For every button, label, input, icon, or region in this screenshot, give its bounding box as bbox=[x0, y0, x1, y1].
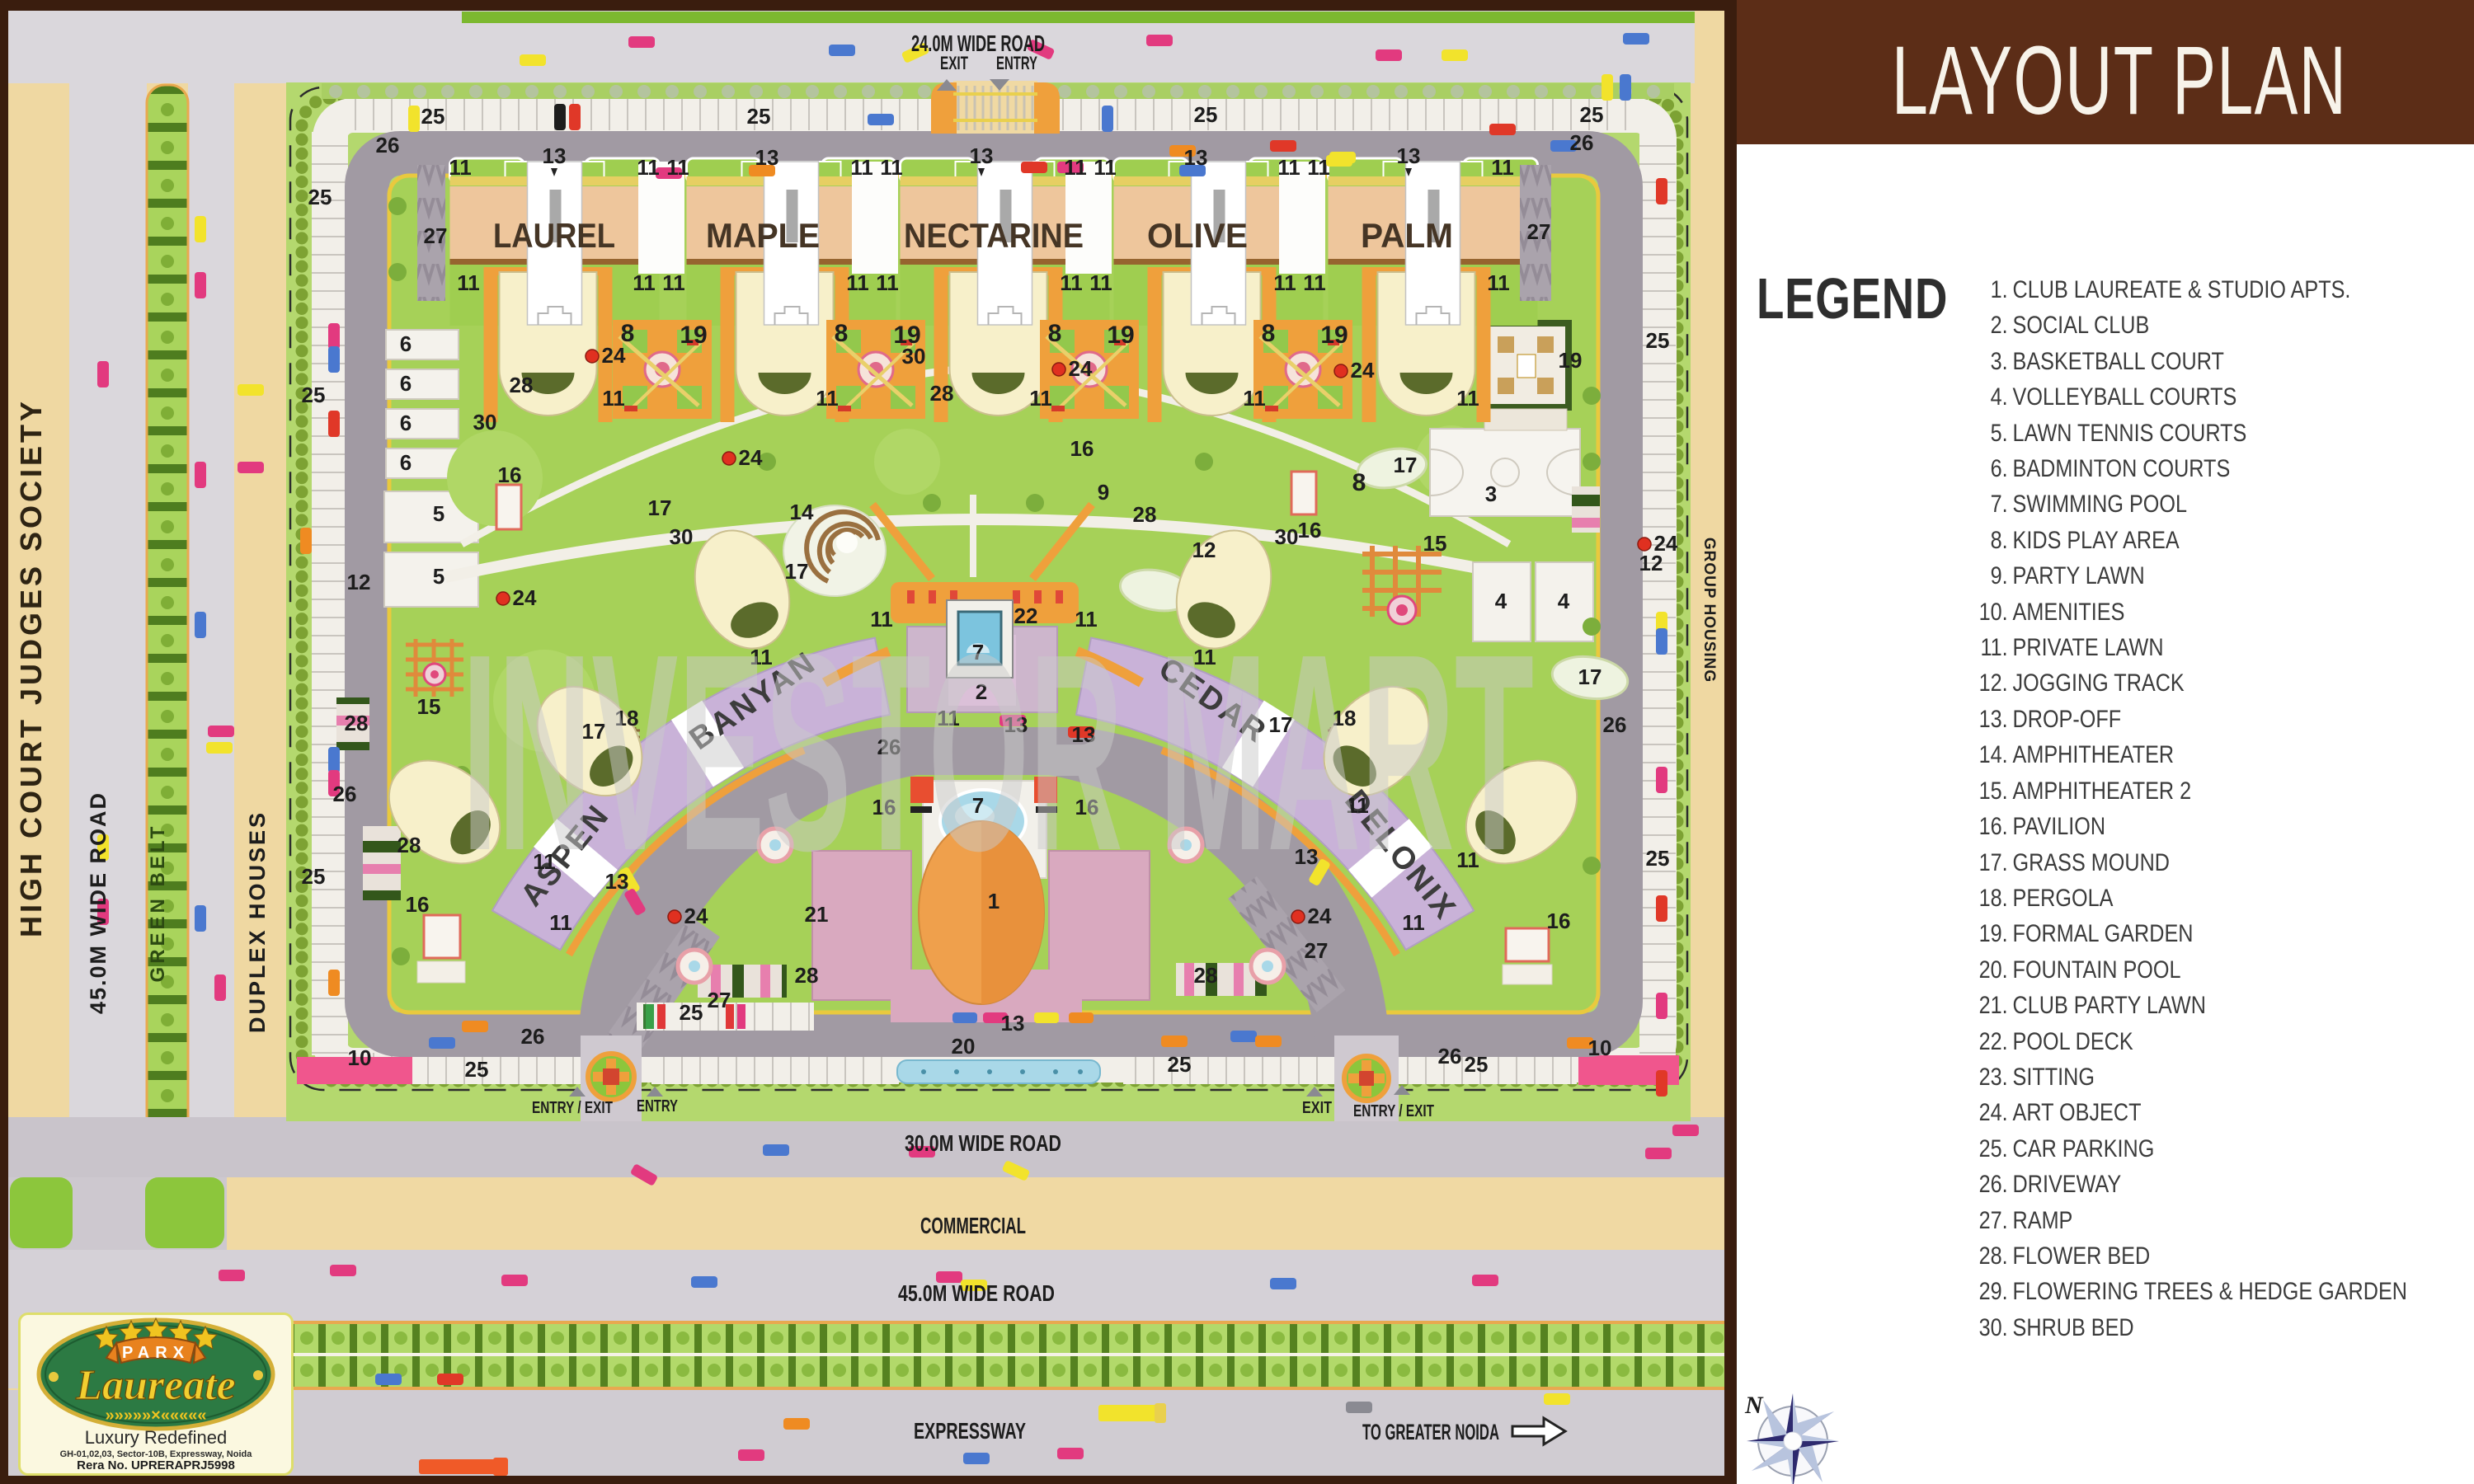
svg-text:11: 11 bbox=[1487, 270, 1510, 295]
svg-text:11: 11 bbox=[1456, 386, 1479, 411]
svg-text:25: 25 bbox=[1465, 1052, 1489, 1077]
svg-text:19: 19 bbox=[893, 322, 920, 349]
svg-text:25: 25 bbox=[1646, 328, 1670, 353]
svg-text:11: 11 bbox=[1064, 155, 1087, 180]
svg-text:DUPLEX HOUSES: DUPLEX HOUSES bbox=[245, 810, 270, 1033]
svg-text:17: 17 bbox=[1578, 665, 1602, 689]
svg-text:19: 19 bbox=[1107, 322, 1134, 349]
svg-text:25: 25 bbox=[421, 104, 445, 129]
svg-text:11: 11 bbox=[1273, 270, 1296, 295]
svg-text:N: N bbox=[1744, 1392, 1764, 1419]
svg-text:4: 4 bbox=[1558, 589, 1570, 613]
svg-text:GROUP HOUSING: GROUP HOUSING bbox=[1700, 538, 1718, 683]
svg-text:LAUREL: LAUREL bbox=[493, 216, 615, 255]
svg-text:11: 11 bbox=[662, 270, 685, 295]
svg-text:16: 16 bbox=[406, 892, 430, 917]
svg-text:11: 11 bbox=[816, 386, 839, 411]
svg-text:11: 11 bbox=[1089, 270, 1112, 295]
svg-text:5: 5 bbox=[433, 564, 444, 589]
svg-text:PALM: PALM bbox=[1361, 216, 1453, 255]
svg-text:16: 16 bbox=[1547, 909, 1571, 933]
svg-text:25: 25 bbox=[680, 1000, 703, 1025]
svg-text:25: 25 bbox=[1580, 102, 1604, 127]
svg-text:24: 24 bbox=[1351, 358, 1375, 383]
svg-text:Rera No. UPRERAPRJ5998: Rera No. UPRERAPRJ5998 bbox=[77, 1458, 235, 1472]
svg-text:27: 27 bbox=[708, 988, 731, 1012]
svg-text:45.0M WIDE ROAD: 45.0M WIDE ROAD bbox=[86, 791, 111, 1014]
svg-text:13: 13 bbox=[970, 143, 994, 168]
svg-text:GREEN BELT: GREEN BELT bbox=[147, 824, 169, 983]
svg-text:11: 11 bbox=[549, 910, 572, 935]
svg-text:15: 15 bbox=[1423, 531, 1447, 556]
svg-text:11: 11 bbox=[1402, 910, 1425, 935]
svg-text:MAPLE: MAPLE bbox=[706, 216, 820, 255]
svg-text:25: 25 bbox=[1646, 846, 1670, 871]
svg-text:11: 11 bbox=[457, 270, 480, 295]
svg-text:8: 8 bbox=[835, 320, 849, 347]
svg-text:25: 25 bbox=[465, 1057, 489, 1082]
svg-text:13: 13 bbox=[1001, 1011, 1025, 1036]
svg-text:28: 28 bbox=[795, 963, 819, 988]
svg-text:11: 11 bbox=[876, 270, 899, 295]
svg-text:25: 25 bbox=[1168, 1052, 1192, 1077]
svg-text:11: 11 bbox=[602, 386, 625, 411]
svg-text:8: 8 bbox=[1048, 320, 1062, 347]
svg-text:25: 25 bbox=[308, 185, 332, 209]
svg-text:INVESTOR MART: INVESTOR MART bbox=[462, 596, 1534, 909]
svg-text:8: 8 bbox=[621, 320, 635, 347]
svg-text:13: 13 bbox=[1397, 143, 1421, 168]
svg-text:30: 30 bbox=[670, 524, 694, 549]
svg-text:12: 12 bbox=[1192, 538, 1216, 562]
svg-text:Laureate: Laureate bbox=[75, 1362, 236, 1409]
svg-text:11: 11 bbox=[637, 155, 660, 180]
svg-text:16: 16 bbox=[1070, 436, 1094, 461]
svg-text:8: 8 bbox=[1262, 320, 1276, 347]
svg-text:28: 28 bbox=[930, 381, 954, 406]
svg-text:PARX: PARX bbox=[122, 1344, 190, 1362]
svg-text:11: 11 bbox=[1277, 155, 1300, 180]
svg-text:5: 5 bbox=[433, 501, 444, 526]
svg-text:11: 11 bbox=[1303, 270, 1326, 295]
svg-text:26: 26 bbox=[1570, 130, 1594, 155]
svg-text:25: 25 bbox=[302, 864, 326, 889]
svg-text:EXIT: EXIT bbox=[1302, 1099, 1332, 1117]
svg-text:24: 24 bbox=[739, 445, 763, 470]
svg-text:28: 28 bbox=[345, 711, 369, 735]
svg-text:26: 26 bbox=[1438, 1044, 1462, 1068]
svg-text:ENTRY / EXIT: ENTRY / EXIT bbox=[1353, 1102, 1434, 1120]
svg-text:NECTARINE: NECTARINE bbox=[904, 216, 1084, 255]
svg-text:28: 28 bbox=[510, 373, 534, 397]
svg-text:30.0M WIDE ROAD: 30.0M WIDE ROAD bbox=[905, 1130, 1061, 1156]
svg-text:27: 27 bbox=[424, 223, 448, 248]
svg-text:13: 13 bbox=[543, 143, 567, 168]
svg-text:EXIT: EXIT bbox=[940, 53, 968, 73]
svg-text:26: 26 bbox=[1603, 712, 1627, 737]
svg-text:17: 17 bbox=[1394, 453, 1418, 477]
svg-text:25: 25 bbox=[747, 104, 771, 129]
svg-text:HIGH COURT JUDGES SOCIETY: HIGH COURT JUDGES SOCIETY bbox=[14, 398, 48, 937]
svg-text:45.0M WIDE ROAD: 45.0M WIDE ROAD bbox=[898, 1280, 1055, 1306]
svg-text:ENTRY / EXIT: ENTRY / EXIT bbox=[532, 1099, 613, 1117]
svg-text:19: 19 bbox=[1320, 322, 1348, 349]
svg-text:13: 13 bbox=[1184, 145, 1208, 170]
svg-text:12: 12 bbox=[347, 570, 371, 594]
svg-text:16: 16 bbox=[1298, 518, 1322, 542]
svg-text:25: 25 bbox=[302, 383, 326, 407]
svg-text:13: 13 bbox=[755, 145, 779, 170]
svg-text:ENTRY: ENTRY bbox=[996, 53, 1037, 73]
svg-text:11: 11 bbox=[449, 155, 472, 180]
svg-text:16: 16 bbox=[498, 463, 522, 487]
svg-text:11: 11 bbox=[1491, 155, 1514, 180]
svg-text:11: 11 bbox=[666, 155, 689, 180]
svg-text:3: 3 bbox=[1485, 481, 1497, 506]
svg-text:15: 15 bbox=[417, 694, 441, 719]
svg-text:26: 26 bbox=[376, 133, 400, 157]
svg-text:6: 6 bbox=[400, 411, 412, 435]
svg-text:6: 6 bbox=[400, 450, 412, 475]
svg-text:28: 28 bbox=[1194, 963, 1218, 988]
svg-text:TO GREATER NOIDA: TO GREATER NOIDA bbox=[1362, 1420, 1499, 1444]
svg-text:26: 26 bbox=[521, 1024, 545, 1049]
svg-text:14: 14 bbox=[790, 500, 814, 524]
svg-text:30: 30 bbox=[1275, 524, 1299, 549]
svg-text:8: 8 bbox=[1352, 469, 1366, 496]
svg-text:26: 26 bbox=[333, 782, 357, 806]
svg-text:11: 11 bbox=[1307, 155, 1330, 180]
svg-text:27: 27 bbox=[1527, 219, 1551, 244]
svg-text:19: 19 bbox=[680, 322, 707, 349]
svg-text:OLIVE: OLIVE bbox=[1147, 216, 1248, 255]
svg-text:19: 19 bbox=[1559, 348, 1583, 373]
svg-text:11: 11 bbox=[1060, 270, 1083, 295]
svg-text:17: 17 bbox=[648, 495, 672, 520]
svg-text:11: 11 bbox=[850, 155, 873, 180]
svg-text:EXPRESSWAY: EXPRESSWAY bbox=[914, 1418, 1026, 1444]
svg-text:11: 11 bbox=[1094, 155, 1117, 180]
svg-text:11: 11 bbox=[880, 155, 903, 180]
svg-text:ENTRY: ENTRY bbox=[637, 1097, 678, 1115]
svg-text:30: 30 bbox=[473, 410, 497, 434]
svg-text:9: 9 bbox=[1098, 480, 1109, 505]
svg-text:6: 6 bbox=[400, 371, 412, 396]
svg-text:10: 10 bbox=[348, 1045, 372, 1070]
svg-text:28: 28 bbox=[397, 833, 421, 857]
svg-text:11: 11 bbox=[846, 270, 869, 295]
svg-text:24: 24 bbox=[1654, 531, 1678, 556]
svg-text:11: 11 bbox=[633, 270, 656, 295]
svg-text:25: 25 bbox=[1194, 102, 1218, 127]
svg-text:20: 20 bbox=[952, 1034, 976, 1059]
svg-text:28: 28 bbox=[1133, 502, 1157, 527]
svg-text:»»»»»×«««««: »»»»»×««««« bbox=[106, 1407, 207, 1425]
svg-text:6: 6 bbox=[400, 331, 412, 356]
svg-text:Luxury Redefined: Luxury Redefined bbox=[85, 1427, 227, 1448]
svg-text:COMMERCIAL: COMMERCIAL bbox=[920, 1213, 1026, 1238]
svg-text:11: 11 bbox=[1243, 386, 1266, 411]
svg-text:10: 10 bbox=[1588, 1036, 1612, 1060]
svg-text:11: 11 bbox=[1029, 386, 1052, 411]
svg-text:24: 24 bbox=[1069, 356, 1093, 381]
svg-text:17: 17 bbox=[785, 559, 809, 584]
svg-text:27: 27 bbox=[1305, 938, 1329, 963]
